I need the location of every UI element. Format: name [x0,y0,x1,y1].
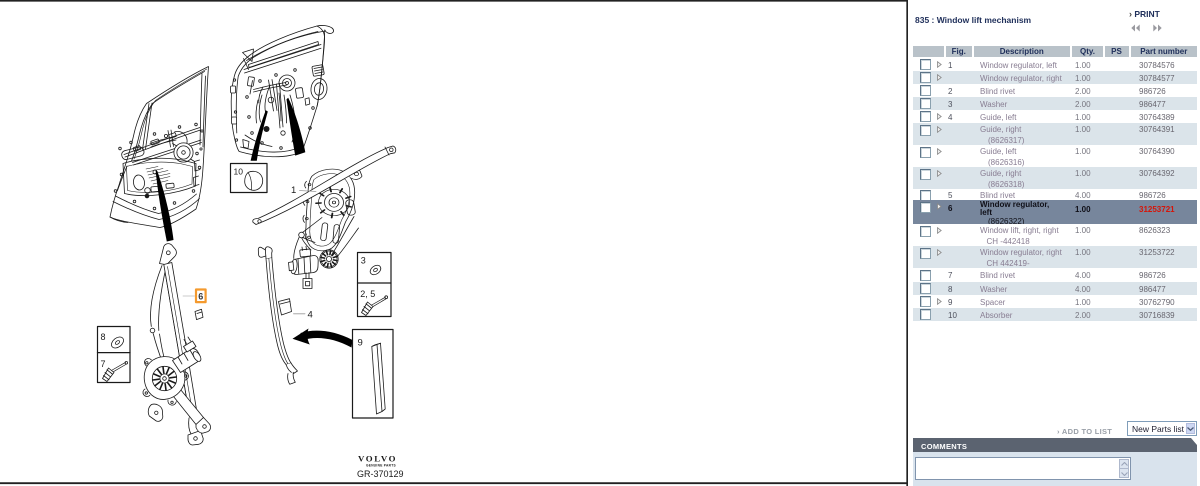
svg-text:9: 9 [358,337,363,348]
svg-text:6: 6 [198,291,203,301]
svg-text:8: 8 [101,332,106,342]
svg-text:GR-370129: GR-370129 [357,469,404,479]
svg-text:GENUINE PARTS: GENUINE PARTS [366,463,396,467]
svg-text:7: 7 [101,359,106,369]
svg-text:10: 10 [234,166,244,176]
svg-text:2, 5: 2, 5 [360,289,375,299]
svg-text:1: 1 [291,185,296,196]
svg-text:3: 3 [361,256,366,266]
svg-text:VOLVO: VOLVO [358,454,397,464]
svg-text:4: 4 [308,310,313,321]
